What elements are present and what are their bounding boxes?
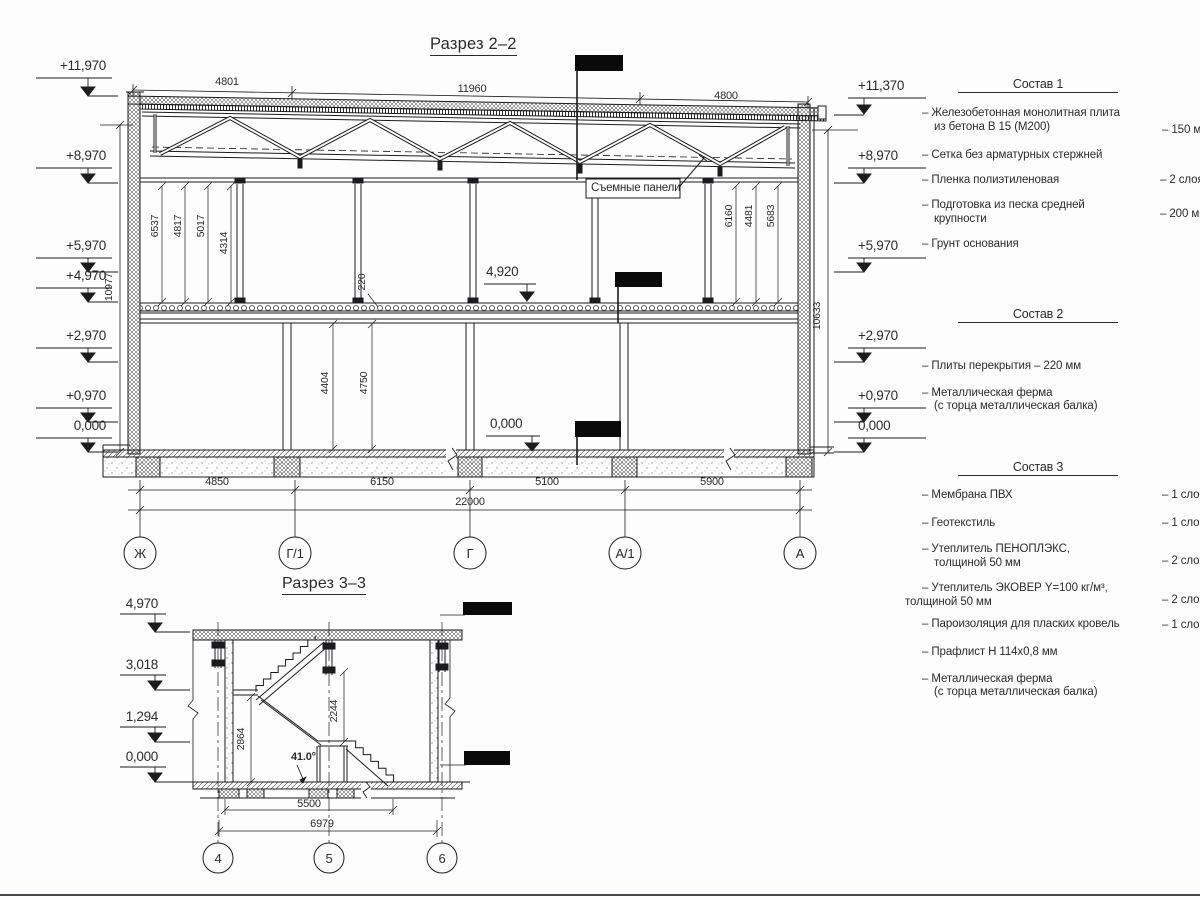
list-item: – Грунт основания	[922, 239, 1019, 251]
section3-drawing	[120, 602, 512, 873]
list-item: из бетона В 15 (М200)	[934, 122, 1050, 134]
roof-truss	[142, 112, 800, 176]
dim-label: 4850	[187, 477, 247, 488]
composition3-title: Состав 3	[958, 461, 1118, 476]
dim-label: 4800	[696, 91, 756, 102]
axis-bubble-label: Г/1	[279, 547, 311, 560]
dim-label: 5100	[517, 477, 577, 488]
dim-label: 4404	[320, 372, 331, 395]
list-item: – Пароизоляция для пласких кровель	[922, 619, 1120, 631]
elevation-label: +2,970	[66, 329, 106, 343]
dim-label: 4314	[219, 232, 230, 255]
dim-label: 22000	[435, 497, 505, 508]
dim-label: 10633	[812, 302, 823, 330]
dim-label: 5900	[682, 477, 742, 488]
left-wall	[128, 92, 140, 454]
dim-label: 2244	[329, 700, 340, 723]
list-item: – Утеплитель ПЕНОПЛЭКС,	[922, 544, 1070, 556]
height-dims	[100, 121, 858, 456]
dim-label: 6150	[352, 477, 412, 488]
cut-marker-top	[575, 55, 623, 71]
panels-label: Съемные панели	[591, 183, 680, 195]
dim-label: 11960	[442, 84, 502, 95]
window-bottom-edge	[0, 894, 1200, 896]
list-item-value: – 1 слой	[1162, 518, 1200, 530]
drawing-sheet: Разрез 2–2 4801 11960 4800 +11,970 +8,97…	[0, 0, 1200, 900]
section2-title: Разрез 2–2	[430, 36, 517, 56]
list-item: – Плиты перекрытия – 220 мм	[922, 361, 1081, 373]
elevation-label: 0,000	[858, 419, 890, 433]
list-item-value: – 1 слой	[1162, 490, 1200, 502]
dim-label: 2864	[236, 728, 247, 751]
list-item: толщиной 50 мм	[905, 597, 992, 609]
list-item: (с торца металлическая балка)	[934, 401, 1097, 413]
list-item: – Сетка без арматурных стержней	[922, 150, 1102, 162]
list-item: – Подготовка из песка средней	[922, 200, 1085, 212]
mid-floor-slab	[140, 303, 798, 323]
dim-label: 4801	[197, 77, 257, 88]
list-item: – Пленка полиэтиленовая	[922, 175, 1059, 187]
s3-dims	[215, 668, 441, 837]
list-item: – Железобетонная монолитная плита	[922, 108, 1120, 120]
cut-marker-mid	[615, 272, 662, 287]
angle-label: 41.0°	[291, 752, 316, 763]
axis-bubble-label: А/1	[609, 547, 641, 560]
list-item-value: – 2 слоя	[1160, 175, 1200, 187]
list-item: – Металлическая ферма	[922, 388, 1052, 400]
upper-floor-frame	[140, 178, 798, 303]
cut-marker-bottom	[575, 421, 621, 437]
s3-hanger-posts	[212, 640, 448, 675]
dim-label: 6160	[724, 205, 735, 228]
list-item-value: – 200 мм	[1160, 209, 1200, 221]
list-item: (с торца металлическая балка)	[934, 687, 1097, 699]
s3-top-slab	[193, 630, 462, 640]
dim-label: 5683	[766, 205, 777, 228]
list-item: – Геотекстиль	[922, 518, 995, 530]
list-item: – Прафлист Н 114х0,8 мм	[922, 647, 1057, 659]
elevation-label: 0,000	[490, 417, 522, 431]
list-item: – Мембрана ПВХ	[922, 490, 1013, 502]
elevation-label: +5,970	[66, 239, 106, 253]
axis-bubble-label: 5	[315, 852, 343, 865]
elevation-label: 1,294	[126, 710, 158, 724]
list-item: крупности	[934, 214, 987, 226]
list-item: – Утеплитель ЭКОВЕР Y=100 кг/м³,	[922, 583, 1108, 595]
s3-stairs	[233, 636, 394, 786]
axis-bubble-label: 4	[204, 852, 232, 865]
axis-bubble-label: Ж	[124, 547, 156, 560]
s3-cut-markers	[440, 602, 512, 765]
composition2-title: Состав 2	[958, 308, 1118, 323]
elevation-label: +11,970	[60, 59, 106, 73]
section3-title: Разрез 3–3	[282, 576, 366, 595]
dim-label: 10977	[104, 273, 115, 301]
list-item-value: – 150 мм	[1162, 125, 1200, 137]
elevation-label: 0,000	[74, 419, 106, 433]
s3-walls	[188, 640, 455, 782]
dim-label: 4750	[359, 372, 370, 395]
elevation-label: 4,970	[126, 597, 158, 611]
axis-bubble-label: 6	[428, 852, 456, 865]
ground-slab	[103, 445, 834, 477]
dim-label: 220	[357, 274, 368, 291]
elevation-label: 4,920	[486, 265, 518, 279]
elevation-label: +11,370	[858, 79, 904, 93]
elevation-label: +0,970	[858, 389, 898, 403]
elevation-label: +8,970	[858, 149, 898, 163]
elevation-label: +4,970	[66, 269, 106, 283]
list-item-value: – 1 слой	[1162, 620, 1200, 632]
list-item: – Металлическая ферма	[922, 674, 1052, 686]
list-item-value: – 2 слоя	[1162, 595, 1200, 607]
elevation-label: 0,000	[126, 750, 158, 764]
s3-ground	[185, 782, 470, 799]
elevation-label: +8,970	[66, 149, 106, 163]
dim-label: 6979	[292, 819, 352, 830]
elevation-label: 3,018	[126, 658, 158, 672]
dim-label: 5500	[279, 799, 339, 810]
dim-label: 4481	[744, 205, 755, 228]
bottom-dim-rows	[128, 480, 812, 537]
drawing-canvas	[0, 0, 1200, 900]
elevation-label: +2,970	[858, 329, 898, 343]
elevation-label: +5,970	[858, 239, 898, 253]
dim-label: 5017	[196, 215, 207, 238]
list-item: толщиной 50 мм	[934, 558, 1021, 570]
composition1-title: Состав 1	[958, 78, 1118, 93]
elevation-label: +0,970	[66, 389, 106, 403]
dim-label: 4817	[173, 215, 184, 238]
right-wall	[798, 104, 814, 454]
list-item-value: – 2 слоя	[1162, 556, 1200, 568]
axis-bubble-label: Г	[454, 547, 486, 560]
section2-drawing	[36, 55, 926, 569]
dim-label: 6537	[150, 215, 161, 238]
axis-bubble-label: А	[784, 547, 816, 560]
